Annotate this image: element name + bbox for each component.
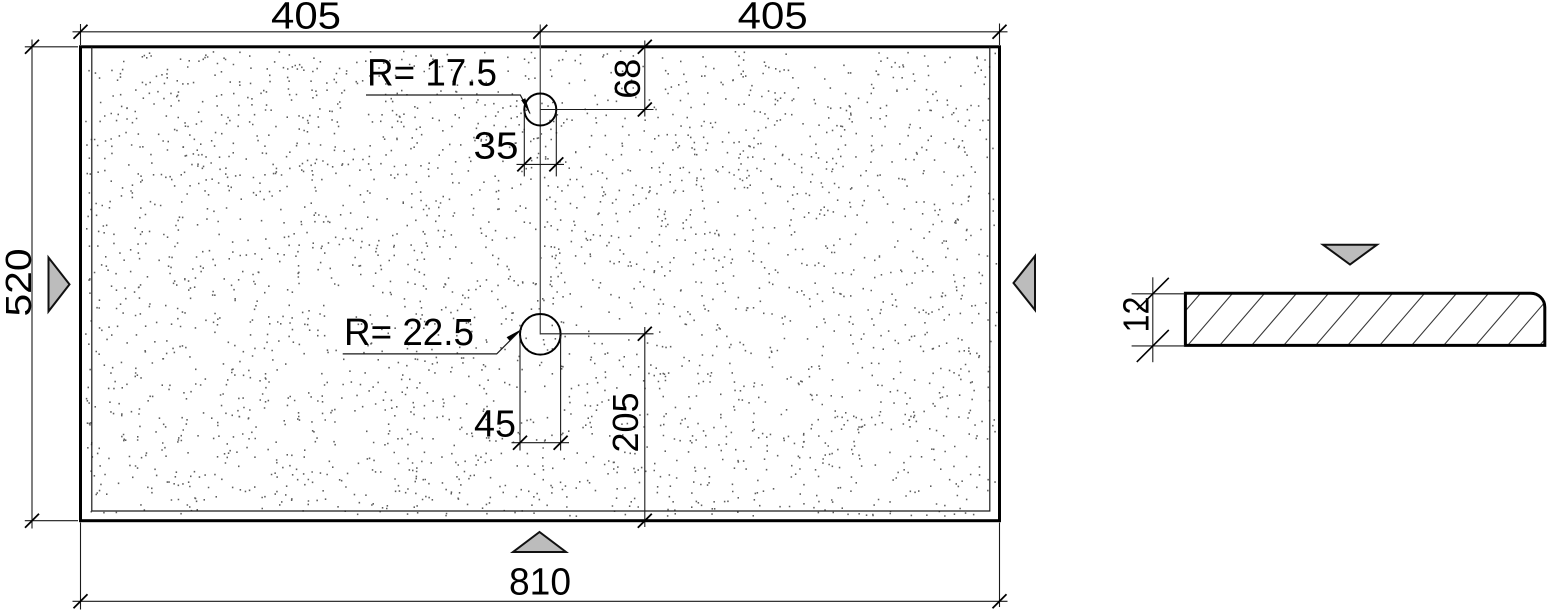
- svg-text:405: 405: [738, 0, 808, 37]
- svg-text:R= 17.5: R= 17.5: [367, 53, 497, 95]
- svg-text:35: 35: [474, 126, 519, 168]
- svg-text:205: 205: [605, 393, 646, 453]
- svg-text:R= 22.5: R= 22.5: [344, 312, 474, 354]
- svg-text:45: 45: [474, 404, 516, 446]
- svg-text:520: 520: [0, 249, 39, 317]
- svg-text:68: 68: [607, 59, 648, 99]
- svg-text:405: 405: [271, 0, 341, 37]
- svg-text:810: 810: [509, 561, 571, 603]
- svg-text:12: 12: [1116, 297, 1157, 333]
